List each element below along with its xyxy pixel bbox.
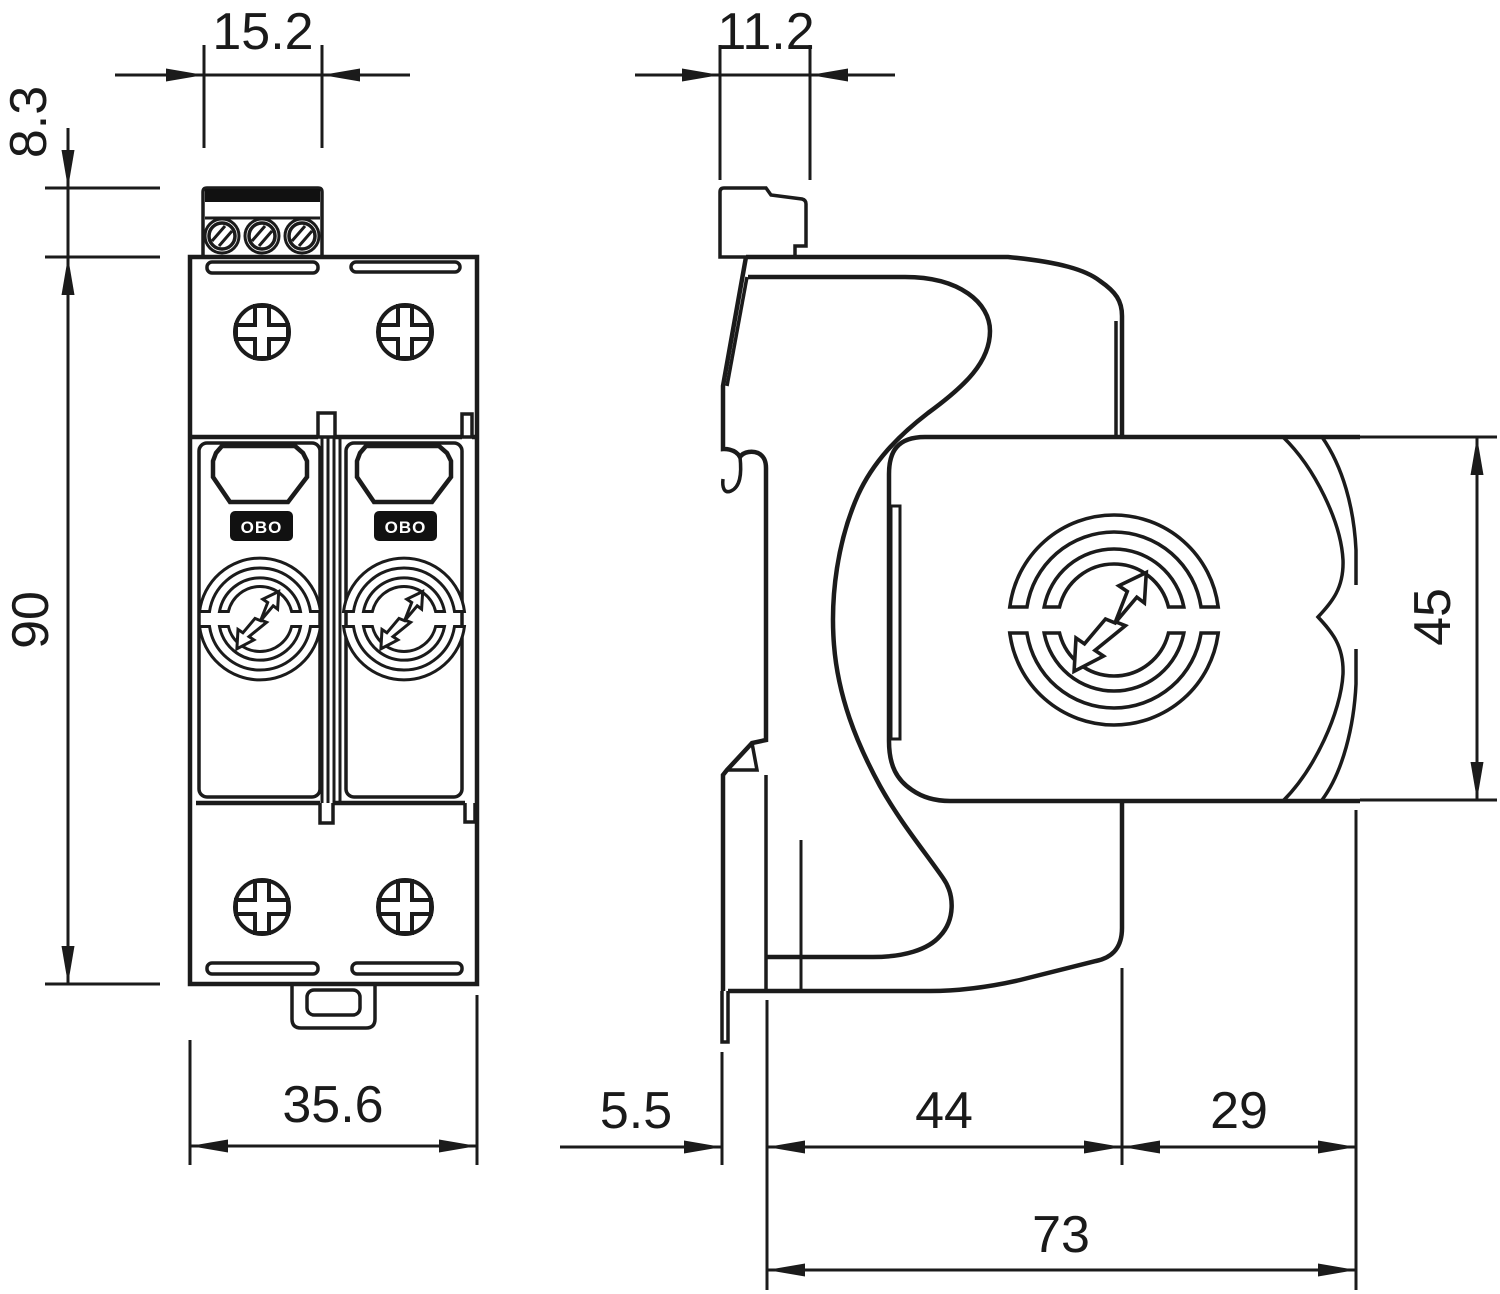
module-front-face-inner bbox=[1322, 437, 1356, 800]
dim-label-body-width: 35.6 bbox=[282, 1076, 383, 1134]
module-side bbox=[889, 437, 1360, 801]
side-view bbox=[720, 188, 1360, 1042]
phillips-screw-icon bbox=[378, 305, 432, 359]
dim-label-total-depth: 73 bbox=[1032, 1206, 1090, 1264]
module-plug-handle bbox=[213, 446, 307, 502]
lightning-logo-icon bbox=[1010, 515, 1218, 725]
dim-label-rail-offset: 5.5 bbox=[600, 1082, 672, 1140]
terminal-screw-icon bbox=[285, 219, 319, 253]
vent-slot bbox=[207, 963, 318, 974]
module-front-face-outer bbox=[1283, 437, 1343, 801]
terminal-screw-icon bbox=[245, 219, 279, 253]
vent-slot bbox=[207, 262, 318, 273]
phillips-screw-icon bbox=[235, 880, 289, 934]
module-right: OBO bbox=[334, 437, 464, 803]
dim-label-body-height: 90 bbox=[2, 591, 60, 649]
dim-label-clip-width: 11.2 bbox=[717, 3, 814, 61]
latch-tab bbox=[320, 803, 333, 823]
cradle-inner-curve bbox=[748, 277, 990, 957]
obo-logo-text: OBO bbox=[385, 518, 427, 537]
mounting-foot bbox=[292, 984, 375, 1028]
obo-logo: OBO bbox=[374, 511, 437, 541]
dim-label-terminal-width: 15.2 bbox=[212, 3, 313, 61]
dim-label-base-depth: 44 bbox=[915, 1082, 973, 1140]
dim-label-terminal-height: 8.3 bbox=[0, 86, 58, 158]
rail-claw-hook bbox=[723, 457, 741, 492]
terminal-block bbox=[203, 188, 322, 257]
lightning-logo-icon bbox=[200, 558, 321, 680]
vent-slot bbox=[352, 963, 462, 974]
obo-logo: OBO bbox=[230, 511, 293, 541]
phillips-screw-icon bbox=[235, 305, 289, 359]
front-view: OBO OBO bbox=[190, 188, 477, 1028]
latch-tab bbox=[318, 413, 335, 437]
obo-logo-text: OBO bbox=[241, 518, 283, 537]
technical-drawing-page: OBO OBO bbox=[0, 0, 1500, 1294]
phillips-screw-icon bbox=[378, 880, 432, 934]
latch-tab bbox=[462, 414, 472, 437]
dim-label-module-height: 45 bbox=[1404, 588, 1462, 646]
release-tab bbox=[722, 991, 728, 1042]
dimension-drawing-canvas: OBO OBO bbox=[0, 0, 1500, 1294]
dim-label-module-depth: 29 bbox=[1210, 1082, 1268, 1140]
top-clip-block bbox=[720, 188, 806, 257]
lightning-logo-icon bbox=[344, 558, 465, 680]
module-plug-handle bbox=[357, 446, 451, 502]
module-side-groove bbox=[891, 506, 900, 739]
module-left: OBO bbox=[199, 437, 328, 803]
vent-slot bbox=[351, 262, 460, 272]
latch-tab bbox=[465, 803, 475, 822]
terminal-screw-icon bbox=[205, 219, 239, 253]
terminal-top-band bbox=[205, 189, 320, 202]
